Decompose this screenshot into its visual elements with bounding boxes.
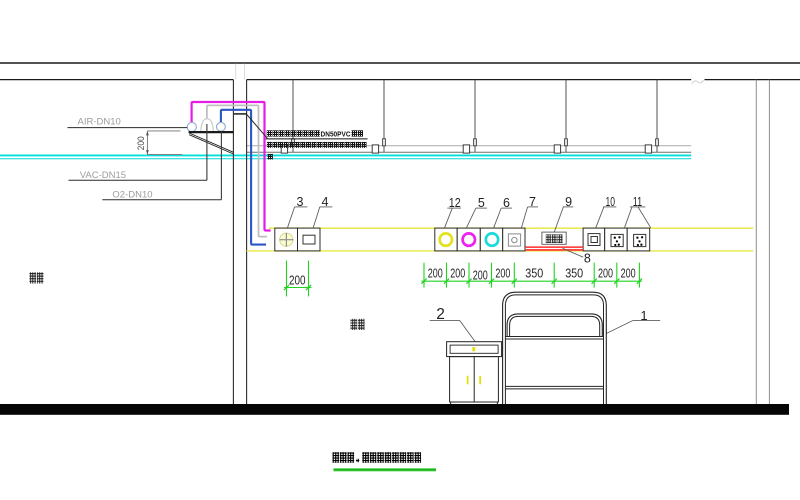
svg-text:200: 200 bbox=[621, 266, 636, 281]
svg-text:200: 200 bbox=[136, 136, 147, 150]
svg-text:2: 2 bbox=[436, 306, 445, 323]
svg-text:7: 7 bbox=[529, 195, 536, 209]
svg-text:11: 11 bbox=[633, 195, 643, 209]
svg-text:5: 5 bbox=[478, 196, 485, 210]
svg-text:4: 4 bbox=[322, 195, 329, 209]
svg-text:6: 6 bbox=[503, 196, 510, 210]
svg-text:8: 8 bbox=[584, 251, 591, 265]
svg-text:12: 12 bbox=[449, 196, 461, 210]
svg-text:200: 200 bbox=[598, 266, 613, 281]
svg-text:VAC-DN15: VAC-DN15 bbox=[80, 170, 126, 181]
svg-text:AIR-DN10: AIR-DN10 bbox=[78, 116, 121, 127]
svg-text:350: 350 bbox=[525, 266, 543, 281]
svg-text:10: 10 bbox=[606, 195, 616, 209]
svg-text:9: 9 bbox=[565, 195, 572, 209]
svg-text:200: 200 bbox=[450, 266, 465, 281]
svg-text:DN50PVC: DN50PVC bbox=[321, 130, 351, 139]
svg-text:200: 200 bbox=[428, 266, 443, 281]
svg-text:200: 200 bbox=[289, 272, 306, 287]
svg-text:200: 200 bbox=[495, 266, 510, 281]
svg-text:1: 1 bbox=[640, 308, 647, 323]
svg-text:O2-DN10: O2-DN10 bbox=[112, 189, 152, 200]
svg-text:3: 3 bbox=[297, 195, 304, 209]
svg-text:350: 350 bbox=[565, 266, 583, 281]
svg-text:200: 200 bbox=[473, 268, 488, 283]
